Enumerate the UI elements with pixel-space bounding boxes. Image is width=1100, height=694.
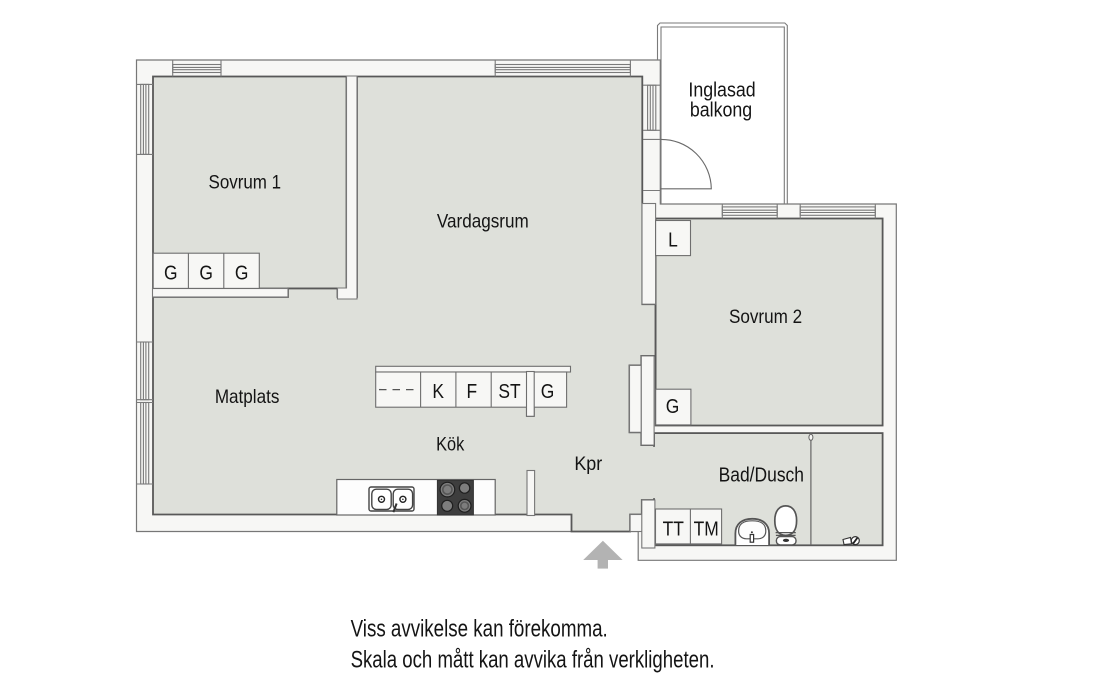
svg-text:Skala och mått kan avvika från: Skala och mått kan avvika från verklighe… xyxy=(351,646,715,673)
svg-text:Viss avvikelse kan förekomma.: Viss avvikelse kan förekomma. xyxy=(351,615,608,642)
svg-text:Matplats: Matplats xyxy=(215,386,280,407)
svg-text:G: G xyxy=(235,262,249,285)
svg-text:Vardagsrum: Vardagsrum xyxy=(437,211,529,232)
svg-text:Sovrum 1: Sovrum 1 xyxy=(209,172,282,193)
svg-text:TT: TT xyxy=(663,518,685,541)
svg-text:G: G xyxy=(541,381,555,404)
svg-text:G: G xyxy=(164,262,178,285)
svg-text:G: G xyxy=(666,396,680,419)
svg-text:Kpr: Kpr xyxy=(574,452,602,474)
svg-text:K: K xyxy=(432,381,444,404)
svg-text:Bad/Dusch: Bad/Dusch xyxy=(719,463,804,485)
svg-text:G: G xyxy=(199,262,213,285)
svg-text:F: F xyxy=(466,381,477,404)
svg-text:Kök: Kök xyxy=(436,433,464,454)
svg-text:ST: ST xyxy=(498,381,521,404)
svg-text:TM: TM xyxy=(694,518,719,541)
svg-text:Sovrum 2: Sovrum 2 xyxy=(729,306,802,327)
svg-text:balkong: balkong xyxy=(690,100,752,122)
svg-text:L: L xyxy=(668,229,678,252)
svg-text:Inglasad: Inglasad xyxy=(688,80,755,102)
